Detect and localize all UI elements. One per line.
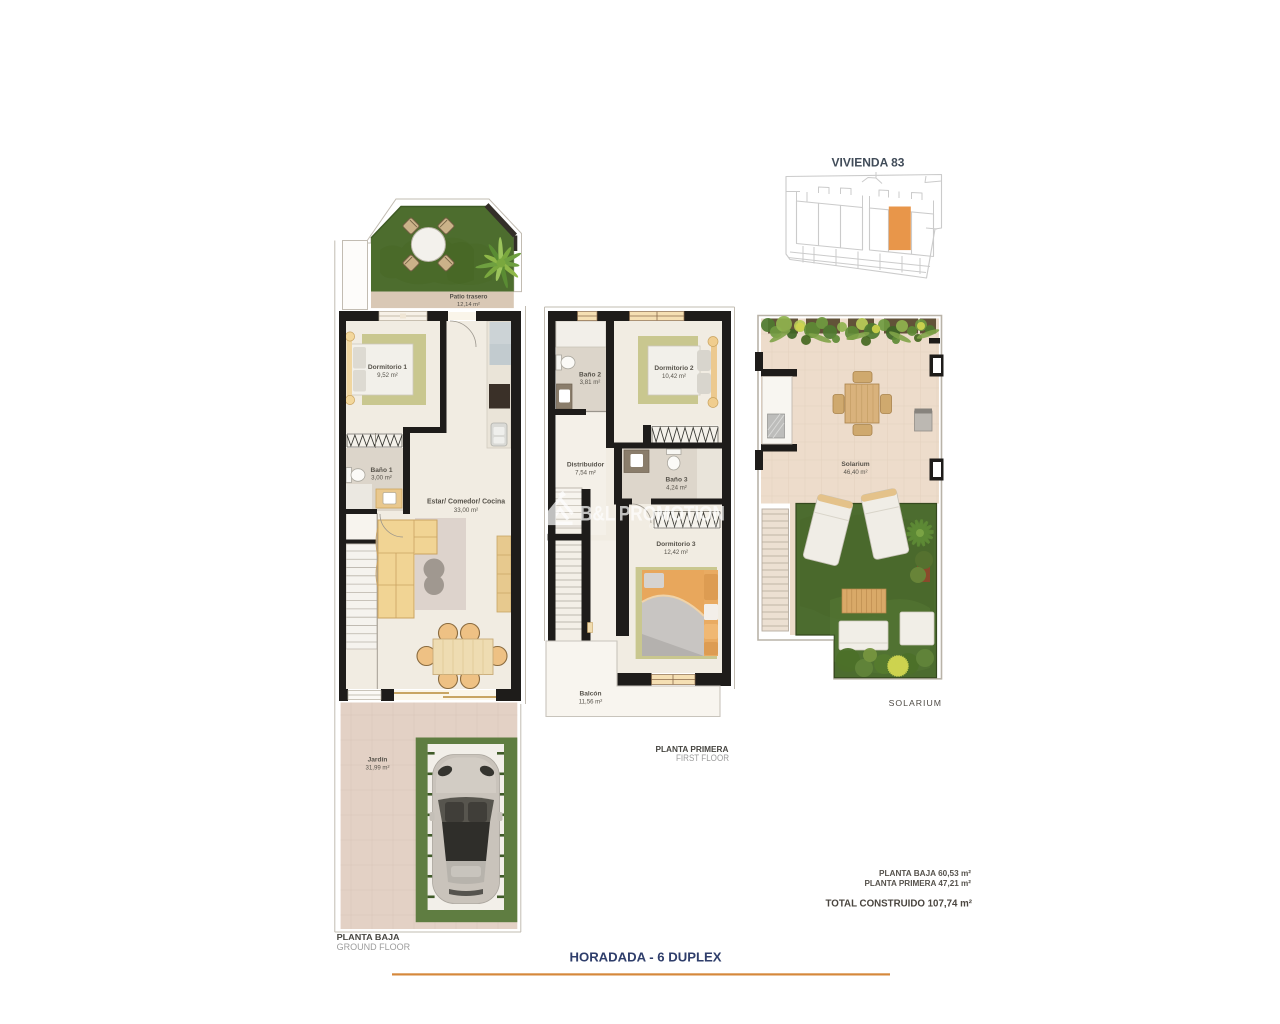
svg-text:12,14 m²: 12,14 m² [457, 302, 480, 308]
svg-text:VIVIENDA 83: VIVIENDA 83 [832, 156, 905, 170]
svg-text:12,42 m²: 12,42 m² [664, 549, 688, 556]
svg-text:11,56 m²: 11,56 m² [579, 698, 603, 705]
svg-text:PLANTA BAJA 60,53 m²: PLANTA BAJA 60,53 m² [879, 868, 971, 878]
svg-text:Distribuidor: Distribuidor [567, 462, 605, 469]
svg-text:Baño 1: Baño 1 [371, 467, 393, 474]
svg-text:Baño 2: Baño 2 [579, 372, 601, 379]
svg-text:B&L PROMOTION: B&L PROMOTION [580, 502, 725, 526]
svg-text:CONSTRUCCIONES Y PROMOCIONES: CONSTRUCCIONES Y PROMOCIONES [649, 524, 720, 529]
svg-text:HORADADA - 6 DUPLEX: HORADADA - 6 DUPLEX [570, 950, 722, 965]
svg-text:3,00 m²: 3,00 m² [371, 475, 392, 482]
svg-text:Solarium: Solarium [841, 461, 869, 468]
svg-text:Dormitorio 1: Dormitorio 1 [368, 364, 408, 371]
svg-text:9,52 m²: 9,52 m² [377, 372, 398, 379]
svg-text:33,00 m²: 33,00 m² [454, 507, 478, 514]
svg-text:46,40 m²: 46,40 m² [843, 469, 867, 476]
svg-text:FIRST FLOOR: FIRST FLOOR [676, 753, 729, 763]
svg-text:Estar/ Comedor/ Cocina: Estar/ Comedor/ Cocina [427, 499, 505, 506]
svg-text:7,54 m²: 7,54 m² [575, 470, 596, 477]
svg-text:4,24 m²: 4,24 m² [666, 485, 687, 492]
svg-text:PLANTA PRIMERA 47,21 m²: PLANTA PRIMERA 47,21 m² [865, 878, 972, 888]
svg-text:Jardín: Jardín [368, 757, 388, 764]
svg-text:Patio trasero: Patio trasero [450, 294, 488, 301]
svg-text:3,81 m²: 3,81 m² [580, 379, 601, 386]
svg-text:Dormitorio 3: Dormitorio 3 [656, 541, 696, 548]
svg-text:TOTAL CONSTRUIDO 107,74 m²: TOTAL CONSTRUIDO 107,74 m² [826, 898, 973, 909]
svg-text:Baño 3: Baño 3 [666, 477, 688, 484]
svg-text:PLANTA BAJA: PLANTA BAJA [337, 932, 401, 942]
svg-text:GROUND FLOOR: GROUND FLOOR [337, 942, 411, 952]
svg-text:Balcón: Balcón [580, 691, 602, 698]
svg-text:10,42 m²: 10,42 m² [662, 373, 686, 380]
svg-text:Dormitorio 2: Dormitorio 2 [654, 365, 694, 372]
svg-text:31,99 m²: 31,99 m² [365, 764, 389, 771]
svg-text:SOLARIUM: SOLARIUM [889, 698, 942, 708]
